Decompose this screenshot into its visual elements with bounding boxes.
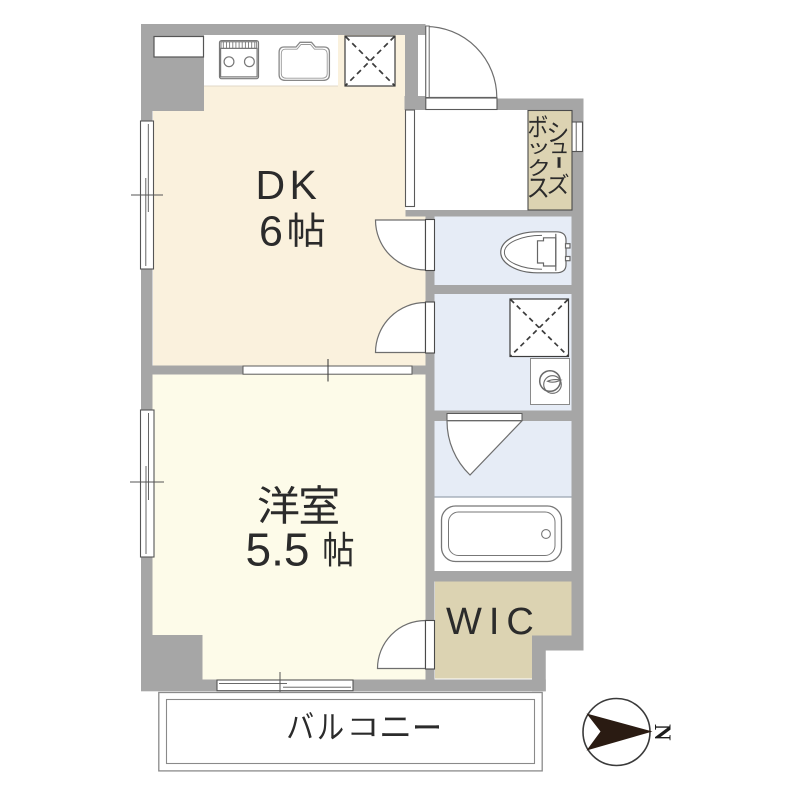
- svg-text:WIC: WIC: [446, 601, 541, 643]
- svg-text:5.5: 5.5: [246, 524, 310, 576]
- svg-text:DK: DK: [256, 162, 322, 208]
- svg-text:N: N: [650, 724, 675, 741]
- svg-text:6: 6: [259, 208, 283, 256]
